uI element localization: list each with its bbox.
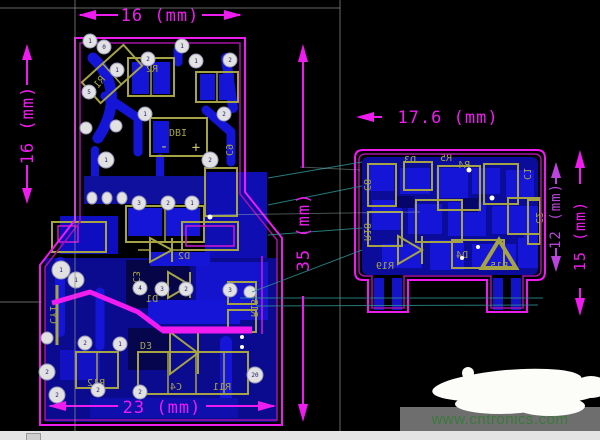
label-r19: R19 (376, 261, 394, 272)
pad: 5 (82, 85, 96, 99)
svg-text:2: 2 (55, 392, 59, 399)
pad: 2 (133, 385, 147, 399)
label-r18: R18 (361, 223, 372, 241)
pad: 3 (155, 282, 169, 296)
svg-text:0: 0 (102, 44, 106, 51)
svg-text:2: 2 (45, 369, 49, 376)
label-c4: C4 (170, 382, 182, 393)
white-smudge (574, 376, 600, 398)
svg-text:2: 2 (166, 200, 170, 207)
label-c1: C1 (521, 168, 532, 180)
svg-text:2: 2 (228, 57, 232, 64)
pad: 1 (68, 272, 84, 288)
label-c2: C2 (533, 212, 544, 224)
svg-text:2: 2 (184, 286, 188, 293)
pad: 2 (223, 53, 237, 67)
pad: 20 (247, 367, 263, 383)
svg-text:1: 1 (180, 43, 184, 50)
pad: 2 (161, 196, 175, 210)
white-smudge (462, 367, 474, 379)
svg-text:1: 1 (59, 267, 63, 274)
pad: 2 (141, 52, 155, 66)
pad: 1 (185, 196, 199, 210)
right-board[interactable]: C8 R18 D3 R5 R4 C1 C2 D4 R19 R15 (355, 150, 545, 312)
label-r13: R13 (248, 299, 259, 317)
label-d1: D1 (146, 294, 158, 305)
svg-text:2: 2 (146, 56, 150, 63)
svg-text:3: 3 (228, 287, 232, 294)
pad: 1 (113, 337, 127, 351)
svg-text:1: 1 (118, 341, 122, 348)
label-c9: C9 (223, 144, 234, 156)
svg-text:1: 1 (115, 67, 119, 74)
label-db1: DBI (169, 128, 187, 139)
pad: 2 (78, 336, 92, 350)
pad: 2 (91, 383, 105, 397)
pad: 2 (179, 282, 193, 296)
status-bar (0, 431, 600, 440)
label-cy1: CY1 (47, 306, 58, 324)
label-d2: D2 (178, 251, 190, 262)
svg-text:2: 2 (83, 340, 87, 347)
pad: 2 (202, 152, 218, 168)
pad: 1 (52, 261, 70, 279)
pad: 1 (189, 54, 203, 68)
cad-viewport[interactable]: R1 R2 DBI - + C9 D2 C3 D1 D3 R12 R13 C4 … (0, 0, 600, 440)
pad: 2 (217, 107, 231, 121)
svg-text:1: 1 (88, 38, 92, 45)
dimension-left-board-bottom: 23 (mm) (123, 398, 202, 418)
dimension-right-board-top: 17.6 (mm) (397, 108, 498, 128)
svg-text:1: 1 (104, 157, 108, 164)
svg-text:20: 20 (251, 372, 259, 379)
svg-text:2: 2 (208, 157, 212, 164)
pad: 3 (132, 196, 146, 210)
svg-text:1: 1 (194, 58, 198, 65)
svg-text:1: 1 (143, 111, 147, 118)
label-c8: C8 (361, 179, 372, 191)
svg-text:4: 4 (138, 285, 142, 292)
dimension-right-board-full: 15 (mm) (571, 201, 589, 271)
pad: 4 (133, 281, 147, 295)
dimension-left-board-height: 35 (mm) (294, 193, 314, 272)
pad: 1 (138, 107, 152, 121)
label-r11: R11 (213, 382, 231, 393)
label-d3-right: D3 (404, 155, 416, 166)
svg-text:2: 2 (96, 387, 100, 394)
svg-text:1: 1 (190, 200, 194, 207)
svg-text:2: 2 (222, 111, 226, 118)
pad: 1 (83, 34, 97, 48)
label-db1-plus: + (192, 140, 200, 156)
pad: 1 (98, 152, 114, 168)
white-smudge (515, 396, 585, 416)
dimension-left-board-side: 16 (mm) (18, 86, 38, 165)
label-db1-minus: - (160, 139, 168, 155)
svg-text:3: 3 (160, 286, 164, 293)
label-r15: R15 (490, 261, 508, 272)
pad: 1 (110, 63, 124, 77)
svg-text:3: 3 (137, 200, 141, 207)
scroll-box[interactable] (26, 433, 41, 440)
svg-text:5: 5 (87, 89, 91, 96)
dimension-left-board-top: 16 (mm) (121, 6, 200, 26)
pad: 2 (49, 387, 65, 403)
svg-text:2: 2 (138, 389, 142, 396)
label-d3: D3 (140, 341, 152, 352)
pad: 1 (175, 39, 189, 53)
pad: 2 (39, 364, 55, 380)
pad: 3 (223, 283, 237, 297)
dimension-right-board-body: 12 (mm) (548, 183, 564, 249)
pad: 0 (97, 40, 111, 54)
